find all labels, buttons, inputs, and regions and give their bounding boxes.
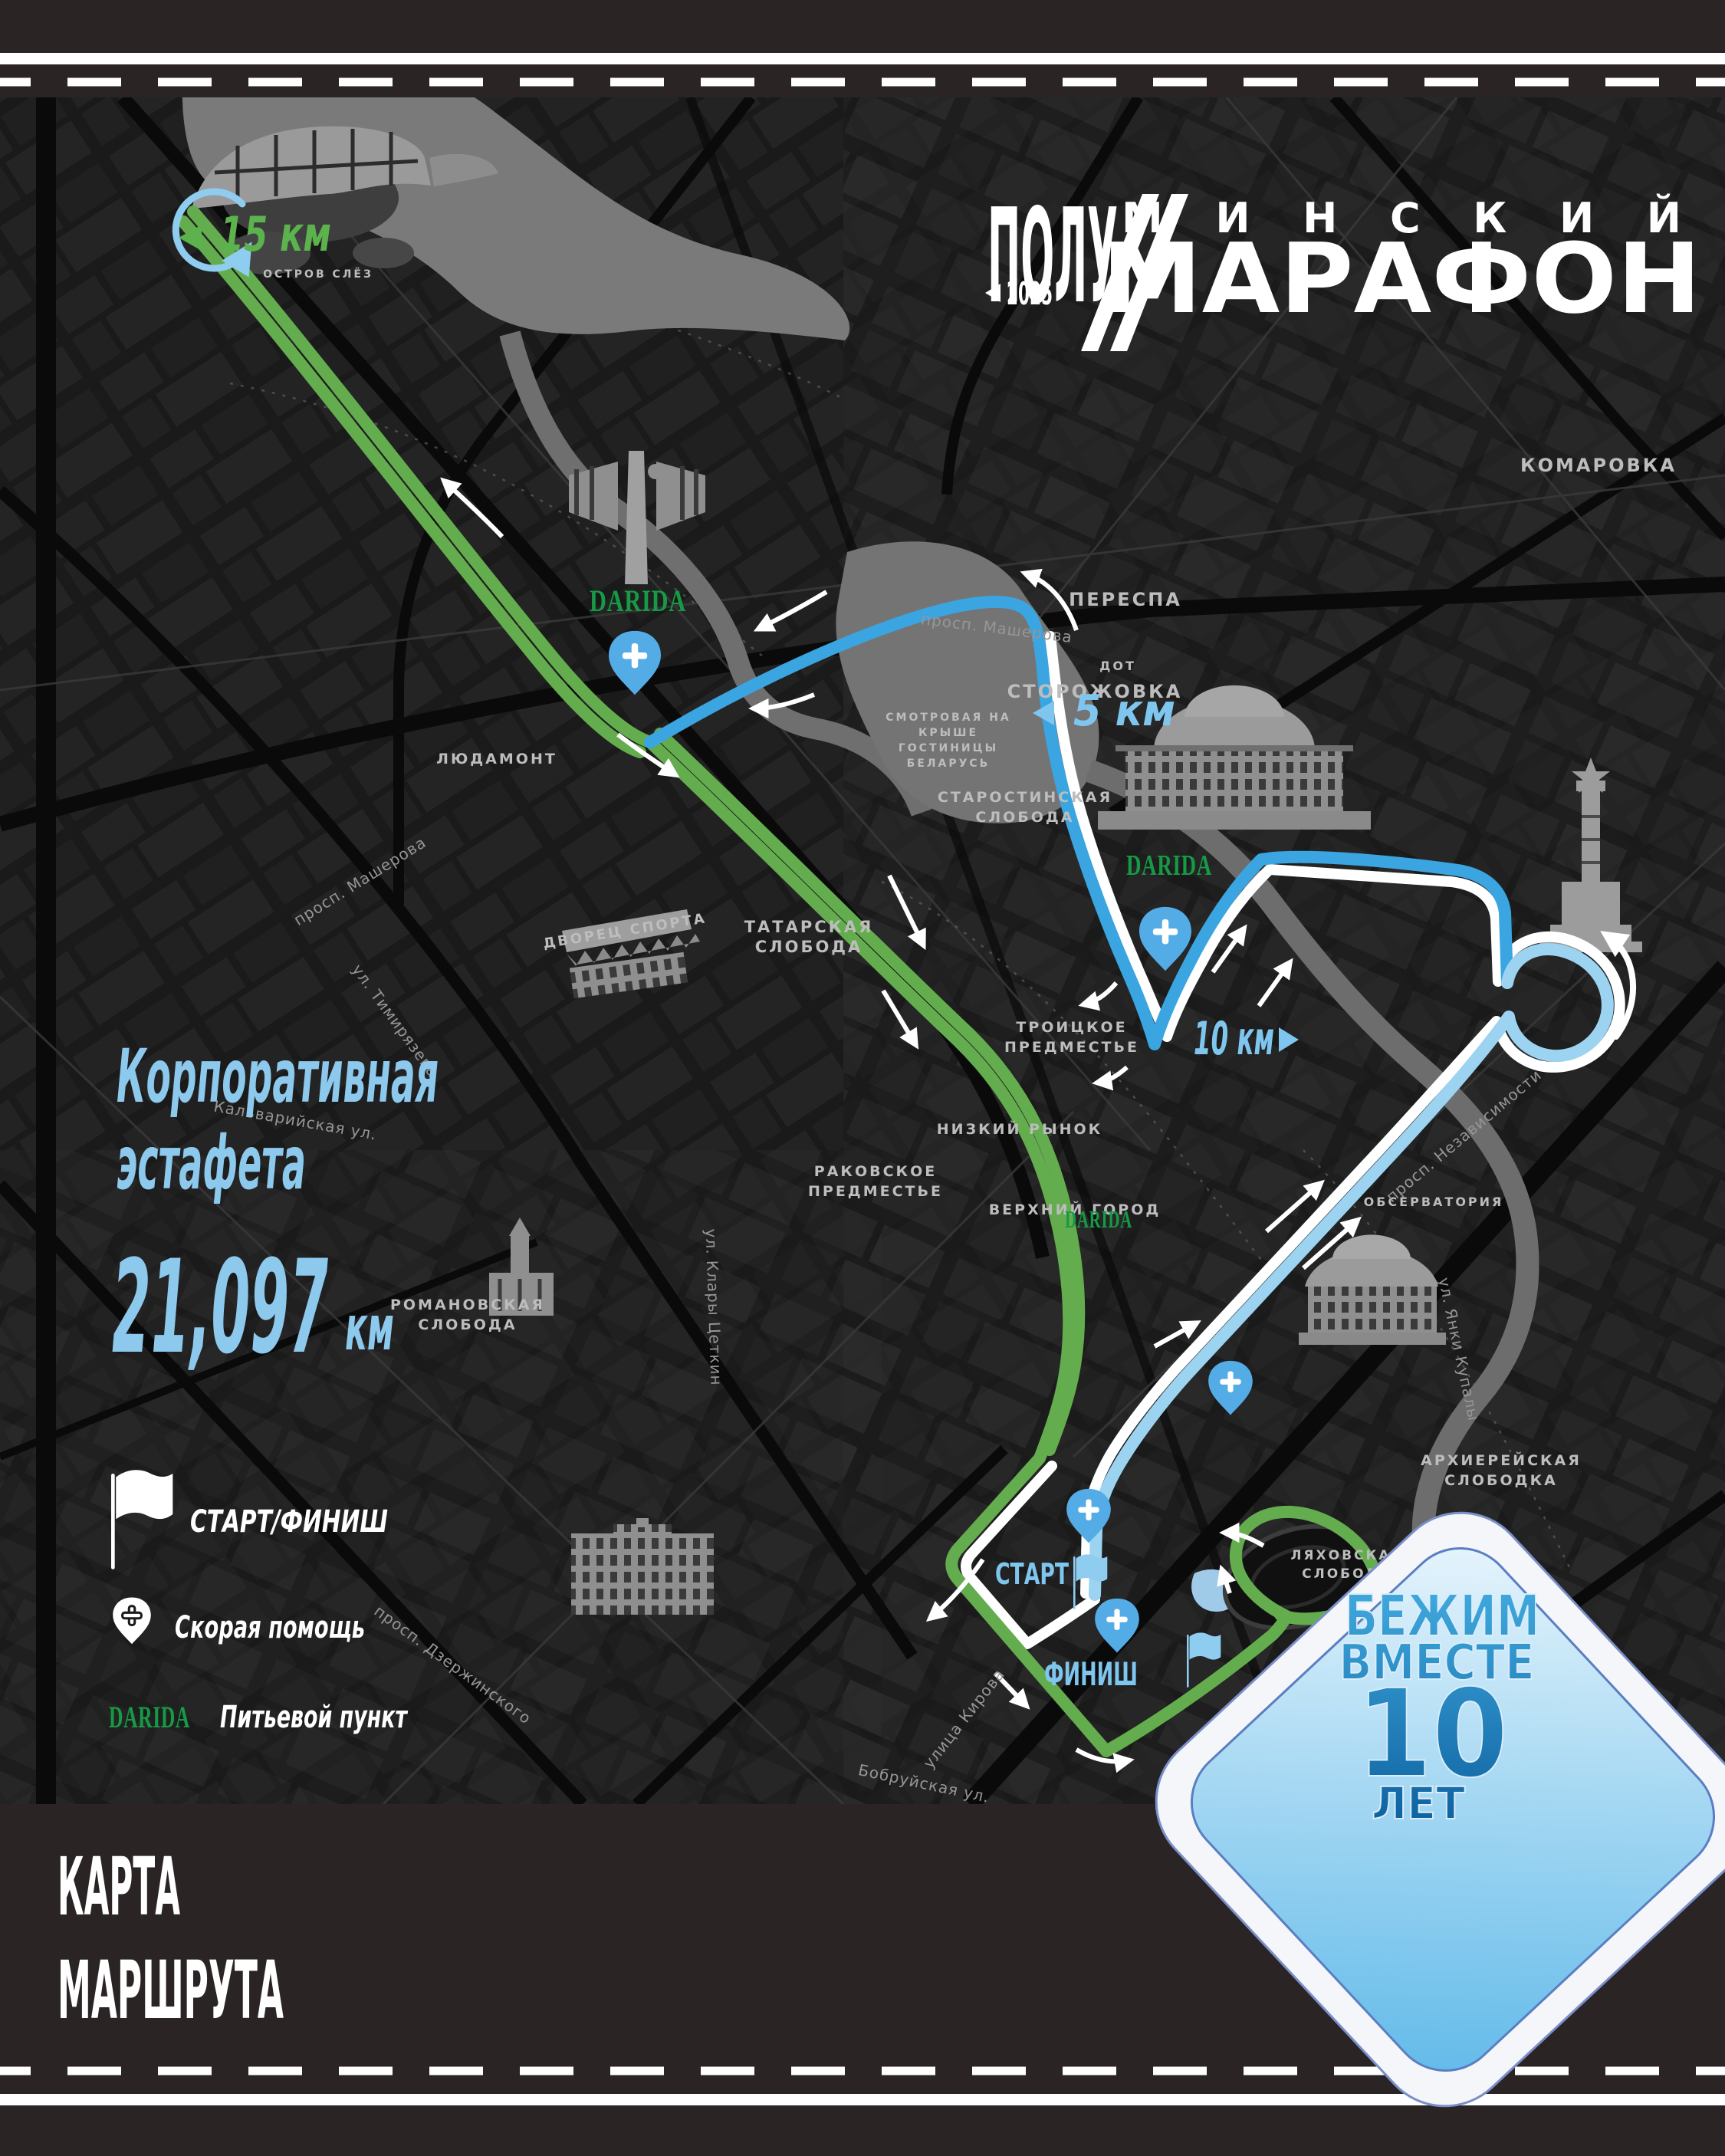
footer-title-line2: МАРШРУТА xyxy=(58,1944,284,2037)
headline-distance: 21,097 xyxy=(112,1232,328,1382)
district-label: ТРОИЦКОЕ xyxy=(1016,1019,1127,1036)
legend-medical-label: Скорая помощь xyxy=(175,1610,365,1645)
district-label: СЛОБОДКА xyxy=(1444,1472,1558,1489)
legend-darida-logo: DARIDA xyxy=(109,1700,190,1734)
district-label: ЛЮДАМОНТ xyxy=(436,751,557,767)
district-label: ТАТАРСКАЯ xyxy=(744,918,874,936)
halfmarathon-route-poster: КОМАРОВКА ПЕРЕСПА СТОРОЖОВКА ДОТ СТАРОСТ… xyxy=(0,0,1725,2156)
km10-label: 10 км xyxy=(1194,1012,1274,1066)
district-label: ПЕРЕСПА xyxy=(1069,589,1182,610)
top-border xyxy=(0,0,1725,97)
district-label: СМОТРОВАЯ НА xyxy=(886,712,1011,724)
km5-label: 5 км xyxy=(1073,686,1175,736)
legend-water-label: Питьевой пункт xyxy=(220,1700,409,1735)
district-label: СЛОБОДА xyxy=(418,1316,517,1333)
headline-unit: км xyxy=(345,1293,394,1364)
district-label: КОМАРОВКА xyxy=(1520,455,1677,476)
darida-water-point-label: DARIDA xyxy=(1065,1205,1132,1233)
top-band xyxy=(0,0,1725,53)
district-label: НИЗКИЙ РЫНОК xyxy=(937,1120,1102,1138)
district-label: КРЫШЕ xyxy=(918,727,978,739)
darida-water-point-label: DARIDA xyxy=(590,583,686,618)
district-label: АРХИЕРЕЙСКАЯ xyxy=(1421,1451,1582,1469)
logo-marathon: МАРАФОН xyxy=(1102,222,1701,335)
legend-start-finish-label: СТАРТ/ФИНИШ xyxy=(190,1504,388,1540)
logo-year: 2025 xyxy=(1007,275,1053,312)
top-solid-line xyxy=(0,53,1725,64)
water-island-3 xyxy=(353,238,414,268)
district-label: ОСТРОВ СЛЁЗ xyxy=(263,268,373,281)
district-label: ГОСТИНИЦЫ xyxy=(899,742,998,754)
district-label: ПРЕДМЕСТЬЕ xyxy=(1004,1039,1139,1056)
badge-line3: ЛЕТ xyxy=(1372,1777,1465,1829)
district-label: СТАРОСТИНСКАЯ xyxy=(938,789,1112,806)
district-label: РАКОВСКОЕ xyxy=(814,1163,937,1180)
km15-label: 15 км xyxy=(220,206,331,262)
district-label: ДОТ xyxy=(1099,659,1136,673)
district-label: ПРЕДМЕСТЬЕ xyxy=(808,1183,943,1200)
headline-line1: Корпоративная xyxy=(117,1034,439,1119)
district-label: РОМАНОВСКАЯ xyxy=(390,1297,545,1313)
district-label: СЛОБОДА xyxy=(975,809,1074,826)
darida-water-point-label: DARIDA xyxy=(1126,850,1212,882)
district-label: ОБСЕРВАТОРИЯ xyxy=(1364,1195,1504,1209)
poster-canvas: КОМАРОВКА ПЕРЕСПА СТОРОЖОВКА ДОТ СТАРОСТ… xyxy=(0,0,1725,2156)
headline-line2: эстафета xyxy=(117,1120,306,1206)
district-label: БЕЛАРУСЬ xyxy=(907,758,991,770)
finish-label: ФИНИШ xyxy=(1044,1655,1138,1693)
footer-title-line1: КАРТА xyxy=(58,1840,180,1934)
start-label: СТАРТ xyxy=(995,1557,1069,1591)
district-label: СЛОБОДА xyxy=(755,938,863,956)
